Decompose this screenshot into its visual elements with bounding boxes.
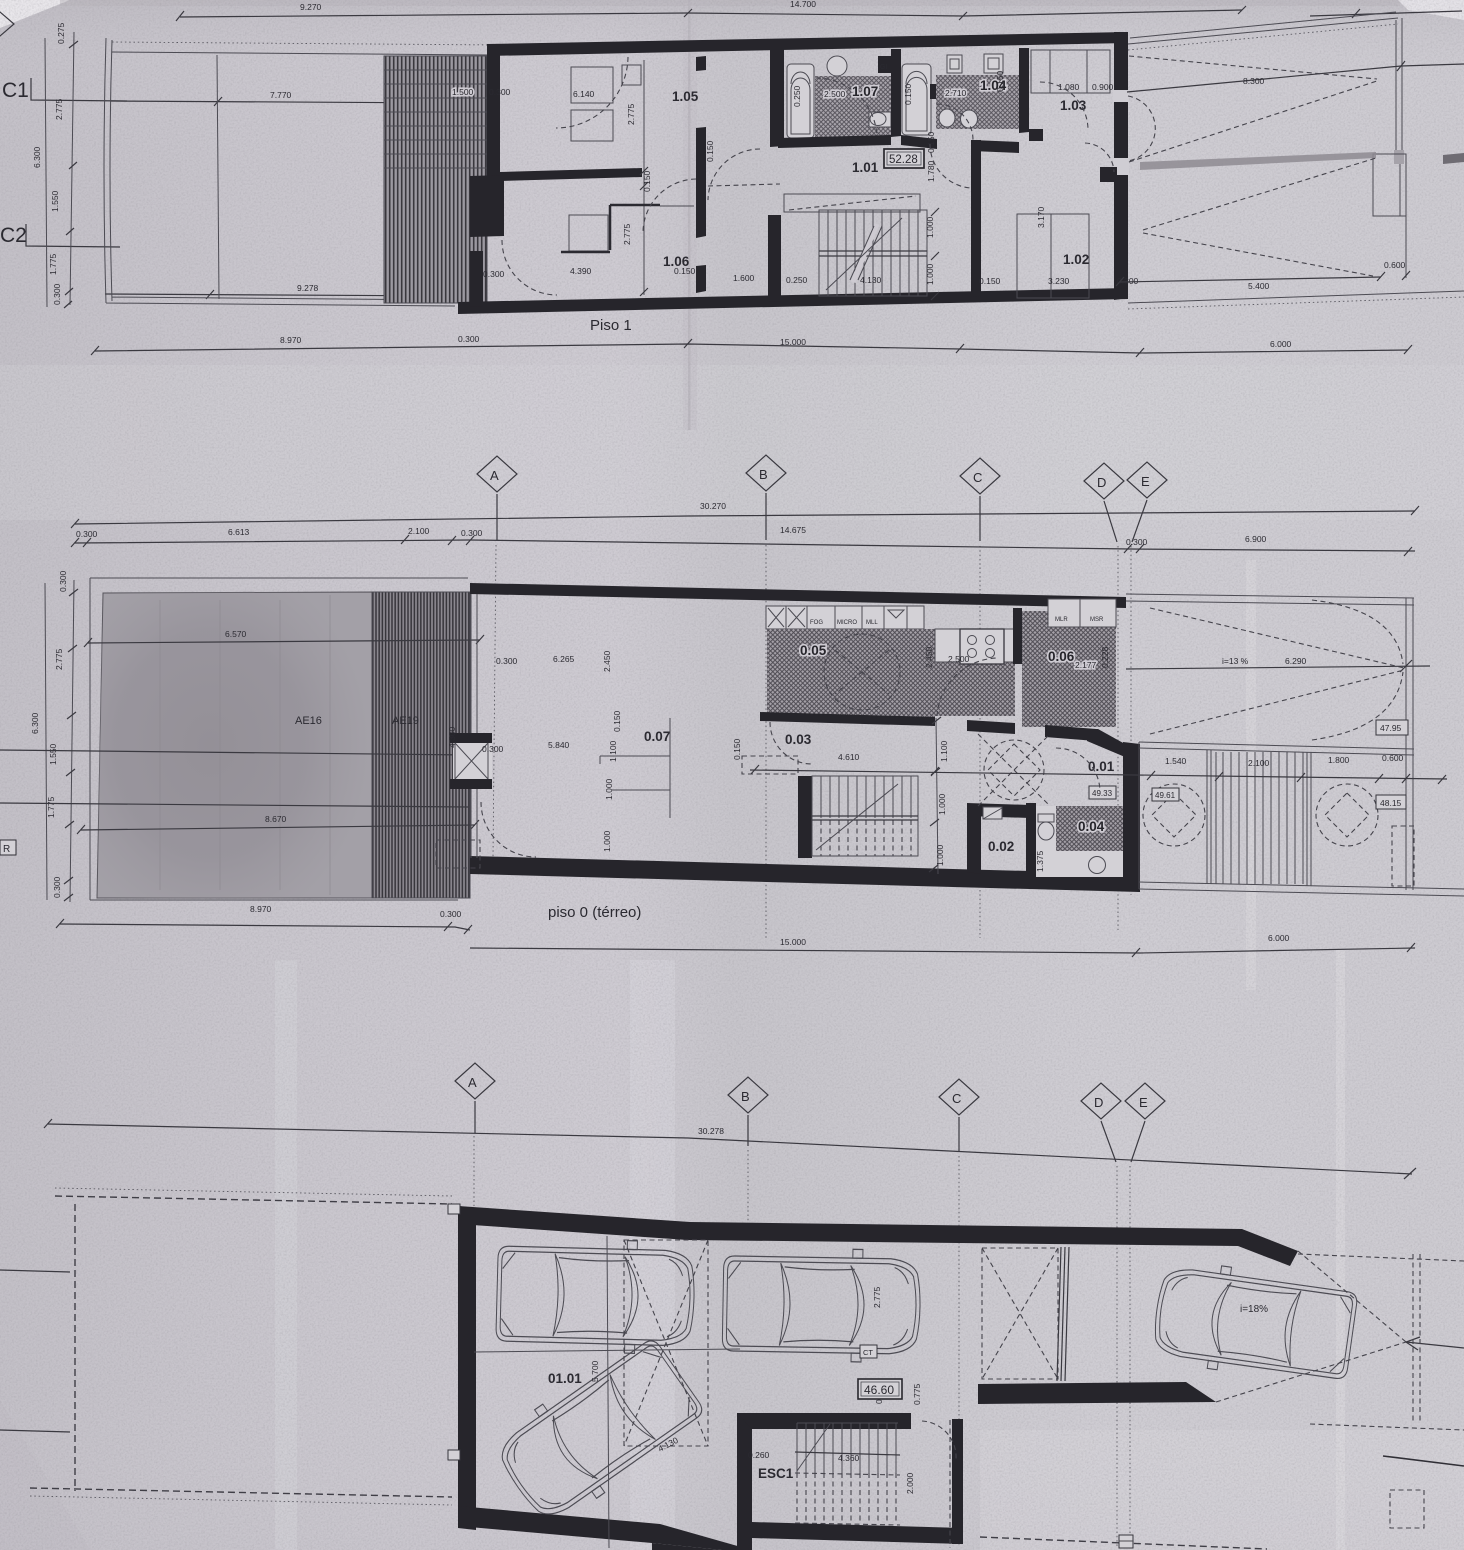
svg-text:1.000: 1.000: [937, 793, 947, 815]
svg-text:0.600: 0.600: [1382, 753, 1404, 763]
svg-text:2.000: 2.000: [905, 1472, 915, 1494]
svg-text:5.700: 5.700: [590, 1360, 600, 1382]
svg-text:0.300: 0.300: [461, 528, 483, 538]
svg-text:1.775: 1.775: [46, 796, 56, 818]
svg-text:2.450: 2.450: [602, 650, 612, 672]
svg-text:14.700: 14.700: [790, 0, 816, 9]
svg-text:0.03: 0.03: [785, 732, 812, 747]
svg-text:2.775: 2.775: [54, 648, 64, 670]
svg-text:49.61: 49.61: [1155, 791, 1176, 800]
svg-text:1.100: 1.100: [608, 740, 618, 762]
svg-text:A: A: [490, 468, 499, 483]
svg-text:0.150: 0.150: [705, 140, 715, 162]
svg-text:15.000: 15.000: [780, 937, 806, 947]
svg-text:ESC1: ESC1: [758, 1466, 794, 1481]
svg-text:MLR: MLR: [1055, 617, 1068, 623]
svg-text:GI: GI: [880, 64, 887, 71]
svg-text:1.02: 1.02: [1063, 252, 1089, 267]
svg-text:1.03: 1.03: [1060, 98, 1087, 113]
svg-text:0.150: 0.150: [732, 738, 742, 760]
svg-text:0.300: 0.300: [458, 334, 480, 344]
svg-text:1.05: 1.05: [672, 89, 699, 104]
svg-text:0.300: 0.300: [1126, 537, 1148, 547]
svg-text:0.07: 0.07: [644, 729, 670, 744]
svg-text:0.150: 0.150: [995, 70, 1005, 92]
svg-text:6.300: 6.300: [30, 712, 40, 734]
svg-text:i=18%: i=18%: [1240, 1304, 1268, 1315]
svg-text:4.130: 4.130: [860, 275, 882, 285]
svg-text:0.150: 0.150: [979, 276, 1001, 286]
svg-text:1.550: 1.550: [48, 743, 58, 765]
svg-text:30.270: 30.270: [700, 501, 726, 511]
svg-text:A: A: [468, 1075, 477, 1090]
svg-text:6.000: 6.000: [1268, 933, 1290, 943]
svg-text:1.500: 1.500: [452, 87, 474, 97]
svg-text:0.150: 0.150: [612, 710, 622, 732]
svg-text:6.000: 6.000: [1270, 339, 1292, 349]
svg-text:1.800: 1.800: [1328, 755, 1350, 765]
svg-text:1.600: 1.600: [733, 273, 755, 283]
svg-text:E: E: [1141, 474, 1150, 489]
svg-text:2.775: 2.775: [872, 1286, 882, 1308]
svg-text:1.100: 1.100: [939, 740, 949, 762]
svg-text:C1: C1: [2, 79, 29, 102]
svg-text:2.450: 2.450: [924, 646, 934, 668]
svg-text:0.300: 0.300: [76, 529, 98, 539]
svg-text:0.300: 0.300: [58, 570, 68, 592]
svg-text:8.670: 8.670: [265, 814, 287, 824]
svg-text:0.300: 0.300: [52, 876, 62, 898]
svg-text:D: D: [1097, 475, 1106, 490]
svg-text:1.540: 1.540: [1165, 756, 1187, 766]
svg-text:49.33: 49.33: [1092, 789, 1113, 798]
svg-text:MICRO: MICRO: [837, 620, 857, 626]
svg-text:0.250: 0.250: [786, 275, 808, 285]
svg-text:2.775: 2.775: [54, 98, 64, 120]
svg-text:5.400: 5.400: [1248, 281, 1270, 291]
svg-text:MSR: MSR: [1090, 617, 1104, 623]
svg-text:0.300: 0.300: [52, 283, 62, 305]
svg-text:3.230: 3.230: [1048, 276, 1070, 286]
svg-text:0.04: 0.04: [1078, 819, 1105, 834]
svg-text:7.770: 7.770: [270, 90, 292, 100]
svg-text:0.01: 0.01: [1088, 759, 1115, 774]
svg-text:0.02: 0.02: [988, 839, 1014, 854]
svg-text:46.60: 46.60: [864, 1383, 894, 1397]
svg-text:0.300: 0.300: [489, 87, 511, 97]
svg-text:piso 0 (térreo): piso 0 (térreo): [548, 904, 641, 921]
svg-text:0.260: 0.260: [748, 1450, 770, 1460]
svg-text:D: D: [1094, 1095, 1103, 1110]
svg-text:5.840: 5.840: [548, 740, 570, 750]
svg-text:0.900: 0.900: [1092, 82, 1114, 92]
svg-text:6.570: 6.570: [225, 629, 247, 639]
svg-text:47.95: 47.95: [1380, 723, 1402, 733]
svg-text:1.000: 1.000: [604, 778, 614, 800]
svg-text:1.080: 1.080: [1058, 82, 1080, 92]
svg-text:0.600: 0.600: [1384, 260, 1406, 270]
svg-text:1.000: 1.000: [602, 830, 612, 852]
svg-text:52.28: 52.28: [889, 154, 918, 166]
svg-text:14.675: 14.675: [780, 525, 806, 535]
svg-text:Piso 1: Piso 1: [590, 317, 632, 334]
svg-text:2.775: 2.775: [622, 223, 632, 245]
svg-text:2.177: 2.177: [1075, 660, 1097, 670]
svg-text:FOG: FOG: [810, 620, 823, 626]
svg-text:1.000: 1.000: [935, 844, 945, 866]
svg-text:0.150: 0.150: [903, 83, 913, 105]
svg-text:C: C: [952, 1091, 961, 1106]
svg-text:6.613: 6.613: [228, 527, 250, 537]
svg-text:9.278: 9.278: [297, 283, 319, 293]
svg-text:1.000: 1.000: [925, 263, 935, 285]
svg-text:0.150: 0.150: [926, 131, 936, 153]
svg-text:4.300: 4.300: [447, 726, 457, 748]
svg-text:2.775: 2.775: [626, 103, 636, 125]
svg-text:2.100: 2.100: [1248, 758, 1270, 768]
svg-text:0.228: 0.228: [1100, 646, 1110, 668]
svg-text:2.710: 2.710: [945, 88, 967, 98]
svg-text:0.300: 0.300: [496, 656, 518, 666]
svg-text:1.000: 1.000: [925, 216, 935, 238]
svg-text:6.300: 6.300: [32, 146, 42, 168]
svg-text:0.05: 0.05: [800, 643, 827, 658]
svg-text:AE19: AE19: [392, 715, 419, 727]
svg-text:0.300: 0.300: [482, 744, 504, 754]
svg-text:6.290: 6.290: [1285, 656, 1307, 666]
svg-text:30.278: 30.278: [698, 1126, 724, 1136]
svg-text:2.500: 2.500: [948, 654, 970, 664]
svg-text:0.06: 0.06: [1048, 649, 1075, 664]
svg-text:01.01: 01.01: [548, 1371, 582, 1386]
svg-text:C2: C2: [0, 224, 27, 247]
svg-text:i=13 %: i=13 %: [1222, 656, 1249, 666]
svg-text:1.07: 1.07: [852, 84, 878, 99]
svg-text:4.390: 4.390: [570, 266, 592, 276]
svg-text:0.275: 0.275: [56, 22, 66, 44]
svg-text:B: B: [759, 467, 768, 482]
svg-text:0.775: 0.775: [912, 1383, 922, 1405]
svg-text:6.265: 6.265: [553, 654, 575, 664]
svg-text:CT: CT: [863, 1348, 873, 1357]
svg-text:8.300: 8.300: [1243, 76, 1265, 86]
svg-text:3.170: 3.170: [1036, 206, 1046, 228]
svg-text:8.970: 8.970: [250, 904, 272, 914]
svg-text:0.150: 0.150: [642, 170, 652, 192]
svg-text:15.000: 15.000: [780, 337, 806, 347]
svg-text:1.375: 1.375: [1035, 850, 1045, 872]
svg-text:1.775: 1.775: [48, 253, 58, 275]
svg-text:C: C: [973, 470, 982, 485]
svg-text:R: R: [3, 844, 10, 855]
svg-text:48.15: 48.15: [1380, 798, 1402, 808]
svg-text:B: B: [741, 1089, 750, 1104]
svg-text:4.360: 4.360: [838, 1453, 860, 1463]
svg-text:6.140: 6.140: [573, 89, 595, 99]
svg-text:0.300: 0.300: [483, 269, 505, 279]
svg-text:9.270: 9.270: [300, 2, 322, 12]
svg-text:8.970: 8.970: [280, 335, 302, 345]
svg-text:6.900: 6.900: [1245, 534, 1267, 544]
svg-text:AE16: AE16: [295, 715, 322, 727]
svg-text:MLL: MLL: [866, 620, 878, 626]
svg-text:4.610: 4.610: [838, 752, 860, 762]
svg-text:1.01: 1.01: [852, 160, 879, 175]
svg-text:0.150: 0.150: [674, 266, 696, 276]
svg-text:0.300: 0.300: [440, 909, 462, 919]
svg-text:2.100: 2.100: [408, 526, 430, 536]
svg-text:0.250: 0.250: [792, 85, 802, 107]
svg-text:E: E: [1139, 1095, 1148, 1110]
svg-text:2.500: 2.500: [824, 89, 846, 99]
svg-text:1.550: 1.550: [50, 190, 60, 212]
